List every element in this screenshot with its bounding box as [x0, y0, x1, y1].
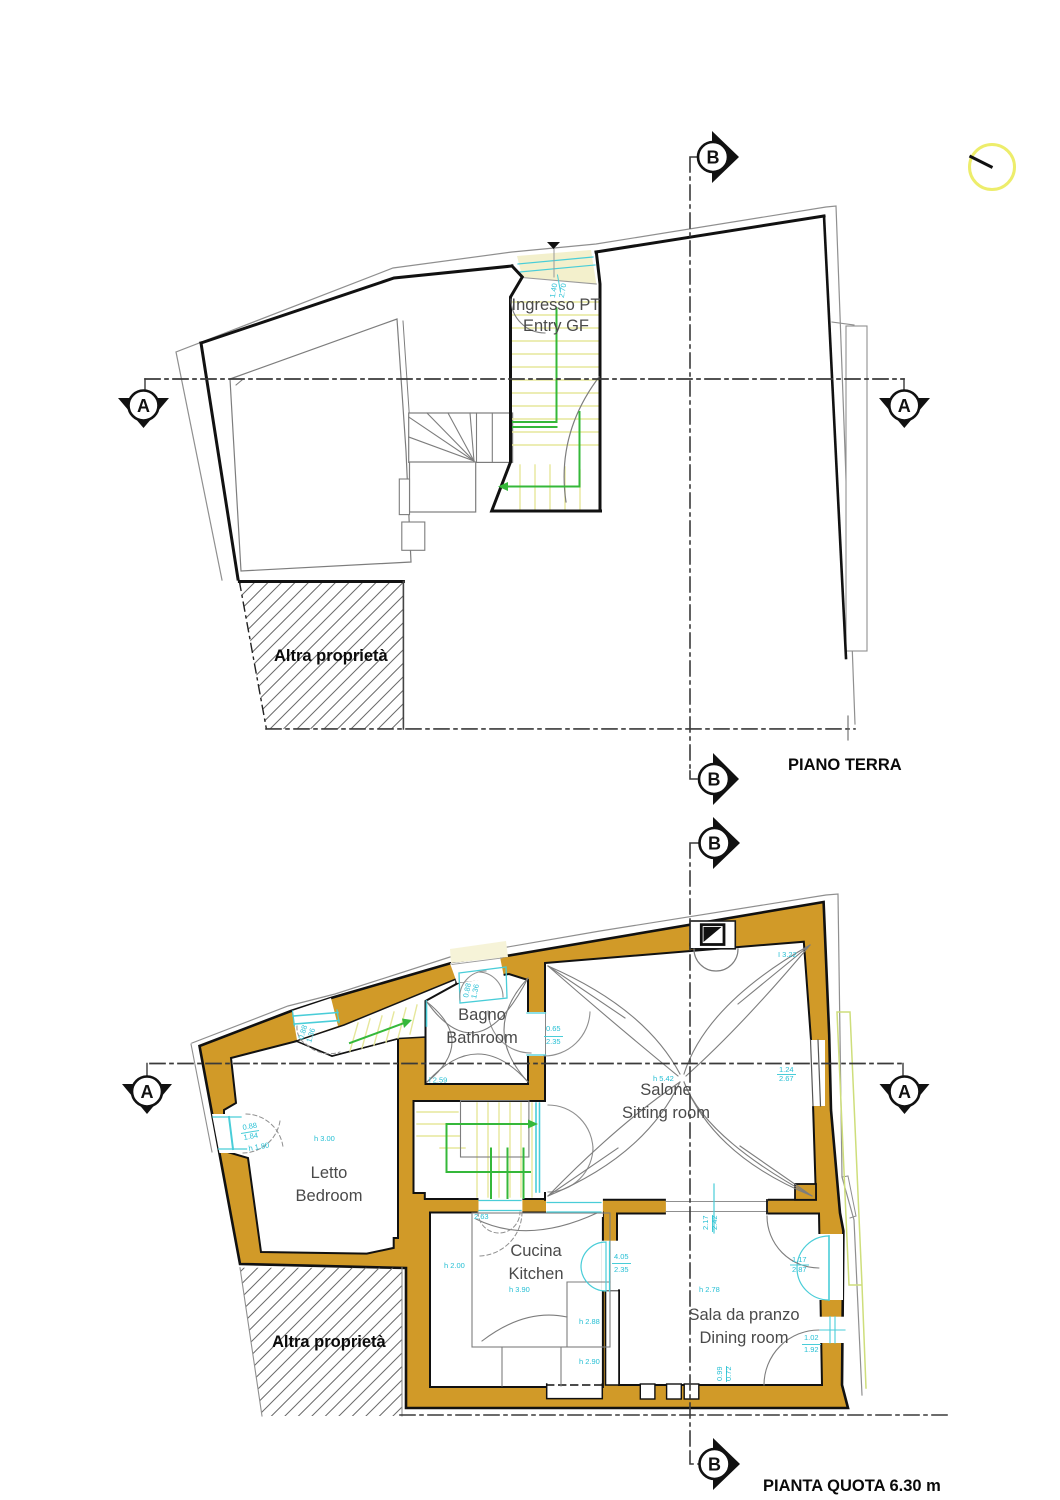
svg-text:Salone: Salone [640, 1081, 691, 1099]
svg-text:B: B [707, 148, 720, 168]
svg-text:0.72: 0.72 [724, 1366, 733, 1381]
svg-text:I 3.22: I 3.22 [778, 950, 797, 959]
svg-text:PIANO TERRA: PIANO TERRA [788, 756, 902, 774]
svg-text:1.92: 1.92 [804, 1345, 819, 1354]
svg-text:A: A [898, 396, 911, 416]
svg-text:A: A [898, 1082, 911, 1102]
svg-text:1.02: 1.02 [804, 1333, 819, 1342]
svg-text:Bathroom: Bathroom [446, 1029, 518, 1047]
svg-text:B: B [708, 770, 721, 790]
svg-text:1.24: 1.24 [779, 1065, 794, 1074]
svg-text:2.67: 2.67 [779, 1074, 794, 1083]
svg-text:Letto: Letto [311, 1164, 348, 1182]
svg-text:Altra proprietà: Altra proprietà [272, 1333, 387, 1351]
svg-text:PIANTA QUOTA 6.30 m: PIANTA QUOTA 6.30 m [763, 1477, 941, 1495]
svg-text:h 2.90: h 2.90 [579, 1357, 600, 1366]
svg-text:Entry GF: Entry GF [523, 317, 589, 335]
svg-text:l 2.59: l 2.59 [429, 1076, 447, 1085]
svg-text:Kitchen: Kitchen [508, 1265, 563, 1283]
svg-text:A: A [137, 396, 150, 416]
svg-text:Cucina: Cucina [510, 1242, 562, 1260]
svg-text:0.99: 0.99 [715, 1366, 724, 1381]
svg-text:2.42: 2.42 [710, 1215, 719, 1230]
svg-text:0.65: 0.65 [546, 1024, 561, 1033]
svg-text:A: A [141, 1082, 154, 1102]
svg-text:h 2.00: h 2.00 [444, 1261, 465, 1270]
svg-text:Sala da pranzo: Sala da pranzo [689, 1306, 800, 1324]
svg-text:2.87: 2.87 [792, 1265, 807, 1274]
svg-text:2.35: 2.35 [614, 1265, 629, 1274]
svg-text:2.35: 2.35 [546, 1037, 561, 1046]
svg-text:Bedroom: Bedroom [296, 1187, 363, 1205]
svg-text:h 3.00: h 3.00 [314, 1134, 335, 1143]
svg-text:Altra proprietà: Altra proprietà [274, 647, 389, 665]
svg-text:Bagno: Bagno [458, 1006, 506, 1024]
svg-text:2.63: 2.63 [474, 1212, 489, 1221]
svg-text:h 3.90: h 3.90 [509, 1285, 530, 1294]
svg-text:1.17: 1.17 [792, 1255, 807, 1264]
svg-text:4.05: 4.05 [614, 1252, 629, 1261]
svg-text:B: B [708, 834, 721, 854]
svg-text:2.17: 2.17 [701, 1215, 710, 1230]
svg-text:Dining room: Dining room [700, 1329, 789, 1347]
svg-text:Sitting room: Sitting room [622, 1104, 710, 1122]
svg-text:h 2.88: h 2.88 [579, 1317, 600, 1326]
svg-text:h 5.42: h 5.42 [653, 1074, 674, 1083]
svg-text:B: B [708, 1455, 721, 1475]
svg-text:h 2.78: h 2.78 [699, 1285, 720, 1294]
